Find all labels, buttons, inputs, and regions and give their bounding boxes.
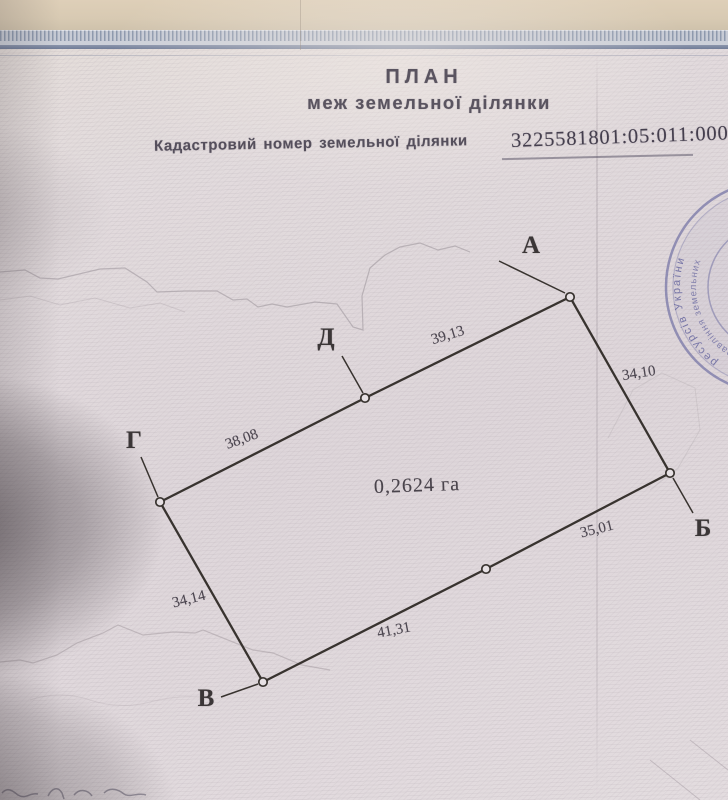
parcel-area-label: 0,2624 га <box>374 473 461 499</box>
parcel-boundary-drawing <box>0 0 728 800</box>
point-label-d: Д <box>317 324 334 352</box>
point-label-v: В <box>198 685 215 713</box>
photographed-land-plan-document: ресурсів України управління земельних ПЛ… <box>0 0 728 800</box>
point-label-b: Б <box>695 515 712 543</box>
point-label-a: А <box>522 232 540 260</box>
point-label-g: Г <box>126 427 142 455</box>
